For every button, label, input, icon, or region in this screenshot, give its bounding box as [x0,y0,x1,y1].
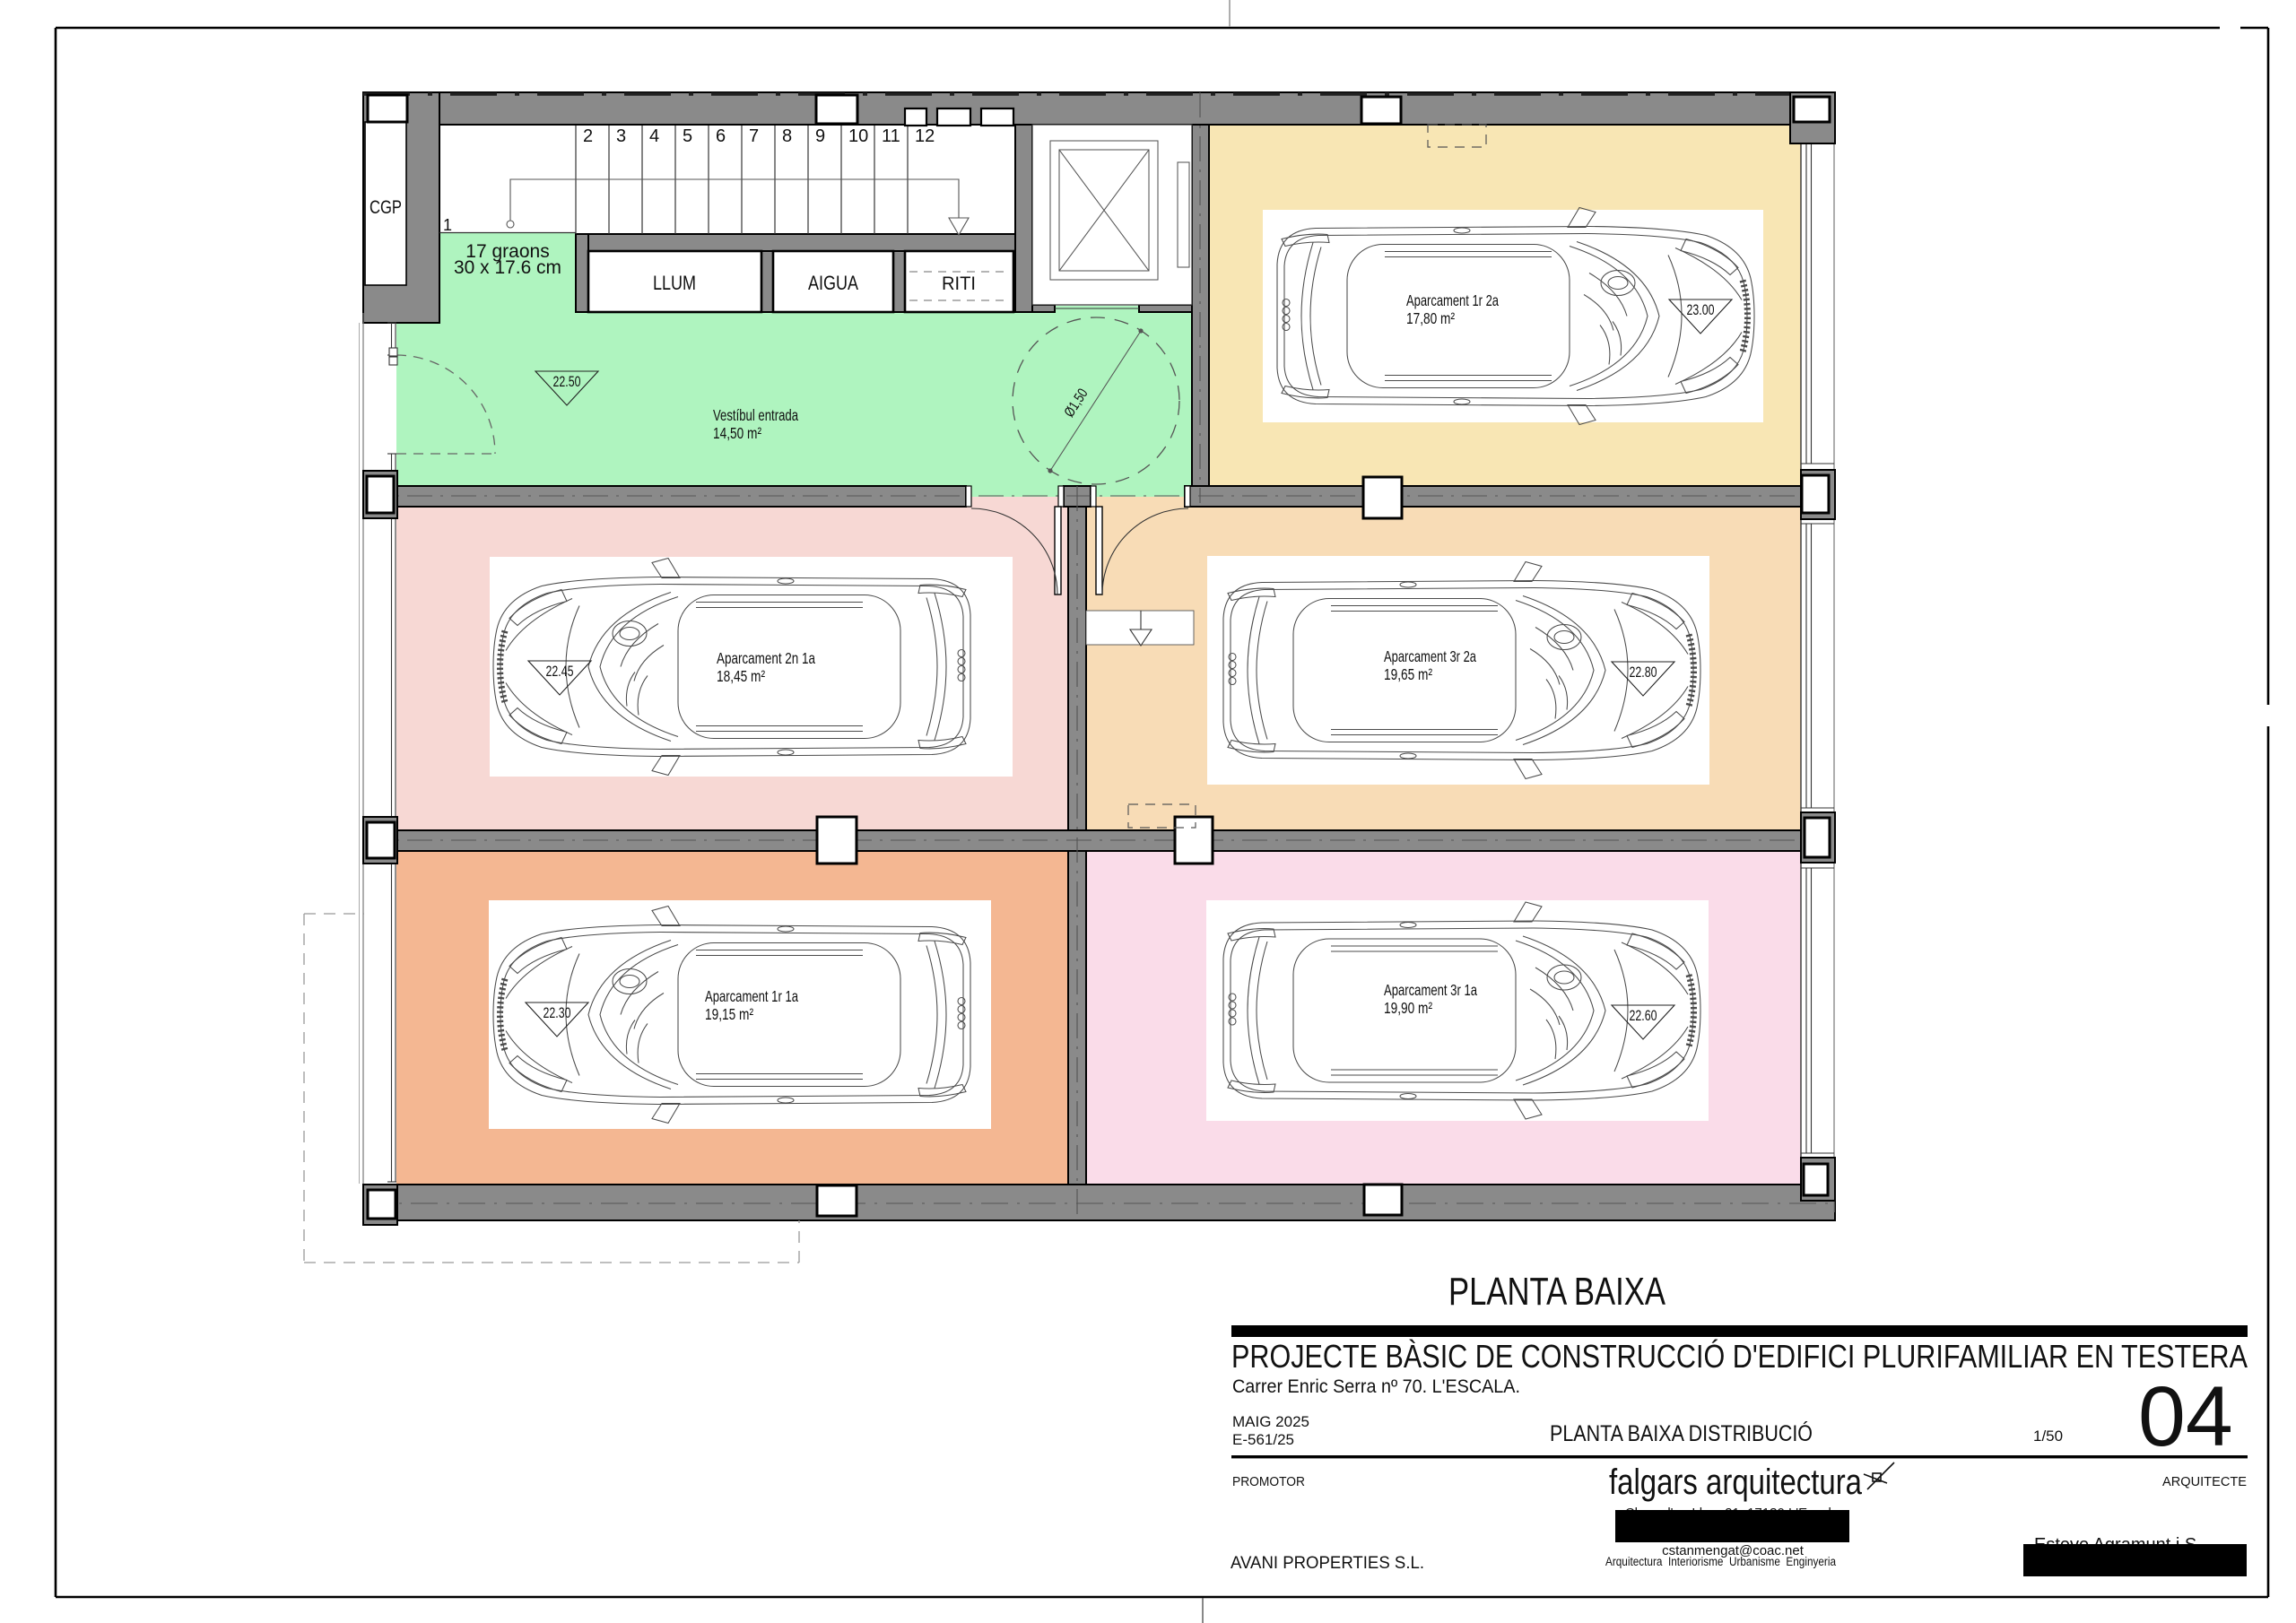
svg-text:11: 11 [882,126,900,146]
svg-text:Aparcament 2n 1a: Aparcament 2n 1a [717,649,815,667]
svg-text:Aparcament 3r 2a: Aparcament 3r 2a [1384,647,1476,665]
svg-text:14,50 m²: 14,50 m² [713,424,761,442]
svg-text:Aparcament 1r 2a: Aparcament 1r 2a [1406,291,1499,309]
svg-text:PLANTA BAIXA: PLANTA BAIXA [1448,1270,1666,1314]
svg-text:7: 7 [749,126,759,146]
svg-text:Carrer Enric Serra nº 70. L'ES: Carrer Enric Serra nº 70. L'ESCALA. [1232,1376,1520,1397]
svg-text:18,45 m²: 18,45 m² [717,667,765,685]
svg-text:10: 10 [848,126,868,146]
svg-text:Aparcament 1r 1a: Aparcament 1r 1a [705,987,798,1005]
svg-text:LLUM: LLUM [653,272,696,294]
svg-text:23.00: 23.00 [1687,301,1715,318]
svg-text:19,65 m²: 19,65 m² [1384,665,1432,683]
svg-text:CGP: CGP [370,197,402,218]
svg-text:AIGUA: AIGUA [808,272,858,294]
svg-text:ARQUITECTE: ARQUITECTE [2162,1474,2247,1489]
svg-text:Aparcament 3r 1a: Aparcament 3r 1a [1384,981,1477,999]
svg-text:30 x 17.6 cm: 30 x 17.6 cm [454,257,561,278]
svg-text:22.80: 22.80 [1630,664,1657,681]
svg-text:MAIG 2025: MAIG 2025 [1232,1413,1309,1430]
svg-text:PLANTA BAIXA DISTRIBUCIÓ: PLANTA BAIXA DISTRIBUCIÓ [1550,1420,1813,1446]
svg-text:1: 1 [443,216,452,234]
svg-text:9: 9 [815,126,825,146]
svg-text:19,90 m²: 19,90 m² [1384,999,1432,1017]
svg-text:E-561/25: E-561/25 [1232,1431,1294,1448]
svg-text:22.50: 22.50 [553,373,581,390]
svg-text:4: 4 [649,126,659,146]
svg-text:Arquitectura Interiorisme Ur: Arquitectura Interiorisme Urbanisme Engi… [1605,1555,1836,1568]
svg-text:22.30: 22.30 [544,1004,571,1021]
svg-text:6: 6 [716,126,726,146]
svg-text:5: 5 [683,126,692,146]
svg-text:22.45: 22.45 [546,663,574,680]
svg-text:AVANI PROPERTIES S.L.: AVANI PROPERTIES S.L. [1231,1553,1424,1573]
svg-text:8: 8 [782,126,792,146]
svg-text:3: 3 [616,126,626,146]
svg-text:RITI: RITI [942,273,976,294]
svg-text:22.60: 22.60 [1630,1007,1657,1024]
svg-text:17,80 m²: 17,80 m² [1406,309,1455,327]
svg-text:2: 2 [583,126,593,146]
svg-text:PROJECTE BÀSIC DE CONSTRUCCIÓ: PROJECTE BÀSIC DE CONSTRUCCIÓ D'EDIFICI … [1231,1338,2248,1375]
svg-text:1/50: 1/50 [2033,1428,2063,1445]
svg-text:19,15 m²: 19,15 m² [705,1005,753,1023]
svg-text:PROMOTOR: PROMOTOR [1232,1474,1305,1489]
svg-text:12: 12 [915,126,935,146]
svg-text:falgars arquitectura: falgars arquitectura [1609,1462,1863,1502]
svg-text:04: 04 [2138,1369,2233,1464]
svg-text:Vestíbul entrada: Vestíbul entrada [713,406,798,424]
